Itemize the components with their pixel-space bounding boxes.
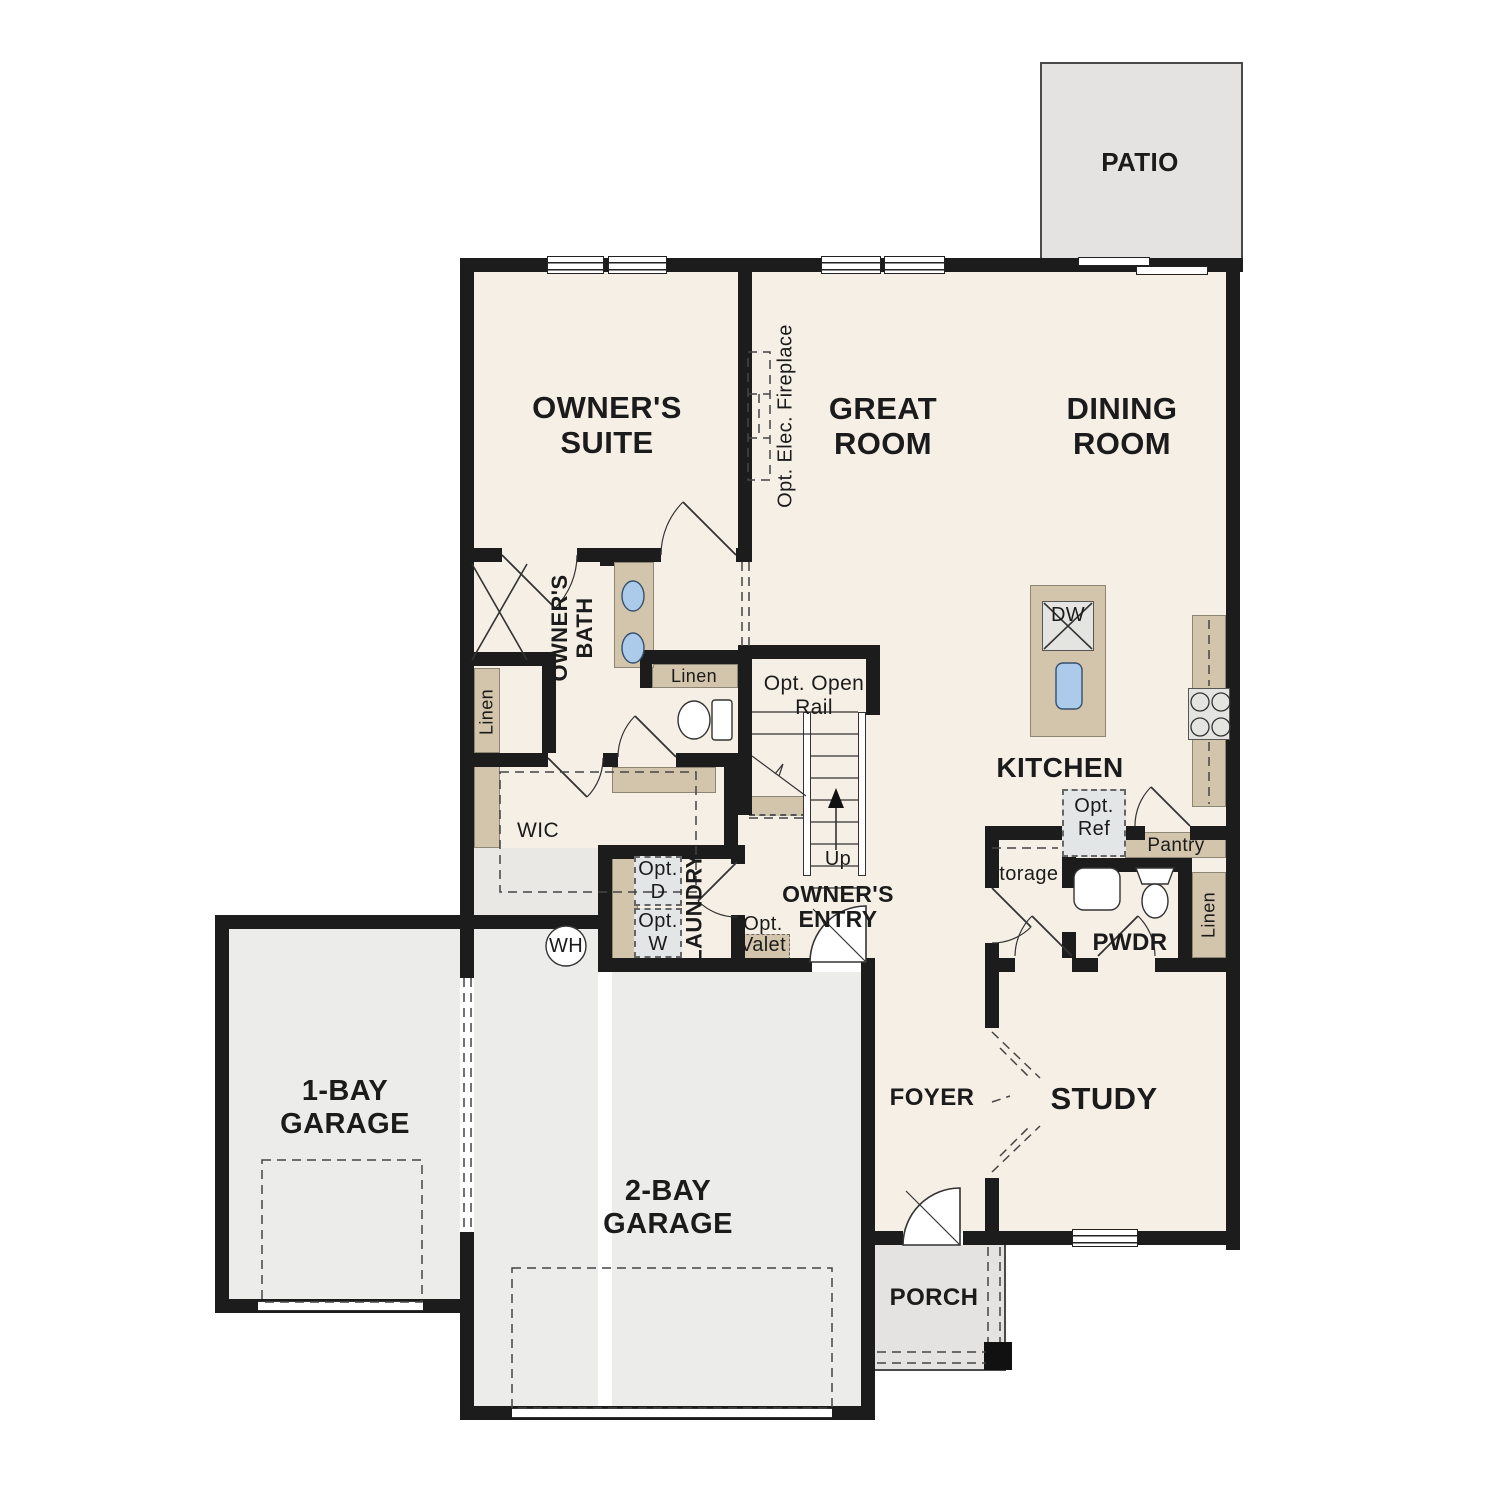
wall-segment: [640, 650, 748, 664]
room-label-porch: PORCH: [898, 1284, 970, 1312]
wall-segment: [736, 548, 752, 562]
room-label-patio: PATIO: [1090, 148, 1190, 178]
wall-segment: [1062, 858, 1126, 872]
wall-segment: [738, 262, 752, 555]
wall-segment: [738, 645, 880, 659]
label-opt-open-rail: Opt. Open Rail: [760, 672, 868, 720]
room-label-study: STUDY: [1048, 1082, 1160, 1116]
porch-column: [984, 1342, 1012, 1370]
label-wh: WH: [548, 934, 584, 958]
wall-segment: [861, 958, 875, 1420]
wic-shelf-top: [612, 767, 716, 793]
wall-segment: [215, 915, 612, 929]
wall-segment: [460, 915, 474, 978]
stair-rail-left: [803, 712, 811, 876]
window: [608, 256, 667, 274]
room-label-foyer: FOYER: [896, 1084, 968, 1112]
room-label-kitchen: KITCHEN: [995, 752, 1125, 784]
label-linen-hall: Linen: [650, 666, 738, 686]
window: [547, 256, 604, 274]
patio-sliding-door: [1078, 257, 1150, 266]
wall-segment: [460, 1232, 474, 1420]
wall-segment: [460, 548, 502, 562]
room-label-wic: WIC: [508, 818, 568, 844]
garage-door-1bay: [258, 1301, 423, 1311]
wall-segment: [1062, 932, 1076, 958]
wall-segment: [1072, 958, 1098, 972]
wall-segment: [598, 845, 612, 972]
wall-segment: [215, 915, 229, 1313]
wall-segment: [1178, 858, 1192, 958]
wall-segment: [600, 548, 614, 566]
label-opt-d: Opt. D: [634, 858, 682, 904]
room-label-owners-suite: OWNER'S SUITE: [522, 388, 692, 462]
wall-segment: [985, 958, 999, 1028]
room-label-great-room: GREAT ROOM: [813, 393, 953, 459]
wall-segment: [460, 258, 474, 934]
wall-segment: [724, 762, 738, 845]
wall-segment: [460, 652, 542, 666]
label-opt-elec-fireplace: Opt. Elec. Fireplace: [775, 324, 798, 508]
room-label-owners-bath: OWNER'S BATH: [546, 576, 598, 680]
wall-segment: [1226, 258, 1240, 1250]
room-label-storage: Storage: [982, 862, 1062, 886]
floor-plan: OWNER'S SUITE GREAT ROOM DINING ROOM PAT…: [0, 0, 1500, 1500]
wall-segment: [460, 753, 548, 767]
stair-rail-right: [858, 712, 866, 876]
room-label-2bay-garage: 2-BAY GARAGE: [598, 1176, 738, 1240]
label-up: Up: [818, 848, 858, 870]
label-opt-valet: Opt. Valet: [732, 910, 794, 960]
patio-sliding-door: [1136, 266, 1208, 275]
room-label-laundry: LAUNDRY: [681, 853, 706, 963]
wic-shelf-left: [474, 753, 500, 848]
wall-segment: [861, 1231, 903, 1245]
window: [884, 256, 945, 274]
garage-2bay-floor-left: [474, 929, 598, 1406]
wall-segment: [1155, 958, 1240, 972]
wall-segment: [866, 645, 880, 715]
wall-segment: [985, 1178, 999, 1233]
room-label-1bay-garage: 1-BAY GARAGE: [275, 1076, 415, 1140]
entry-bench: [749, 796, 807, 816]
label-dw: DW: [1042, 603, 1094, 627]
wall-segment: [738, 645, 752, 815]
wall-segment: [603, 753, 618, 767]
wall-segment: [731, 845, 745, 864]
room-label-dining-room: DINING ROOM: [1047, 393, 1197, 459]
label-linen-right: Linen: [1199, 892, 1220, 938]
window: [1072, 1229, 1138, 1247]
label-opt-w: Opt. W: [634, 910, 682, 956]
label-linen-left: Linen: [477, 689, 498, 735]
label-opt-ref: Opt. Ref: [1063, 794, 1125, 842]
wall-segment: [577, 548, 661, 562]
wic-option-slab: [474, 848, 598, 915]
room-label-pwdr: PWDR: [1092, 930, 1168, 956]
window: [821, 256, 881, 274]
cooktop-box: [1188, 688, 1230, 740]
room-label-pantry: Pantry: [1128, 835, 1224, 857]
garage-door-2bay: [512, 1408, 832, 1418]
wall-segment: [1125, 858, 1178, 872]
